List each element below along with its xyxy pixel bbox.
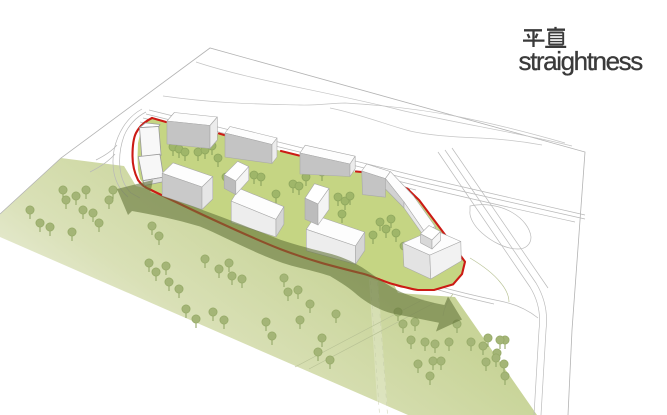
- svg-text:straightness: straightness: [519, 46, 644, 76]
